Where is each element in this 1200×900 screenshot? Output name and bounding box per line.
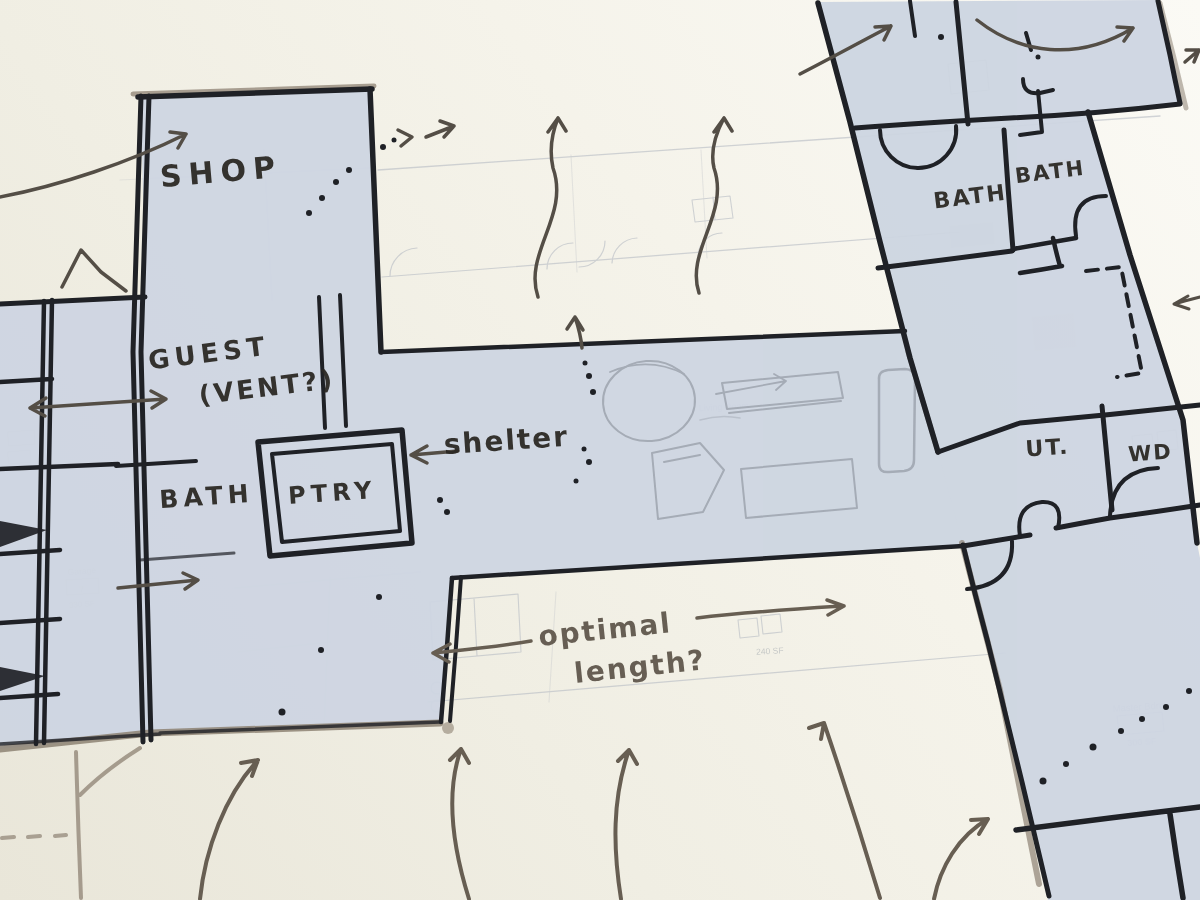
sketch-photo-canvas: Garage7330 SFLiving Room240 SFMaster Bdr…	[0, 0, 1200, 900]
print-label-dining-sf: 240 SF	[756, 645, 784, 656]
tan-blob	[442, 722, 454, 734]
hand-label-wd: WD	[1127, 439, 1173, 466]
floor-plan-sketch: Garage7330 SFLiving Room240 SFMaster Bdr…	[0, 0, 1200, 900]
hand-label-ut: UT.	[1025, 434, 1071, 462]
